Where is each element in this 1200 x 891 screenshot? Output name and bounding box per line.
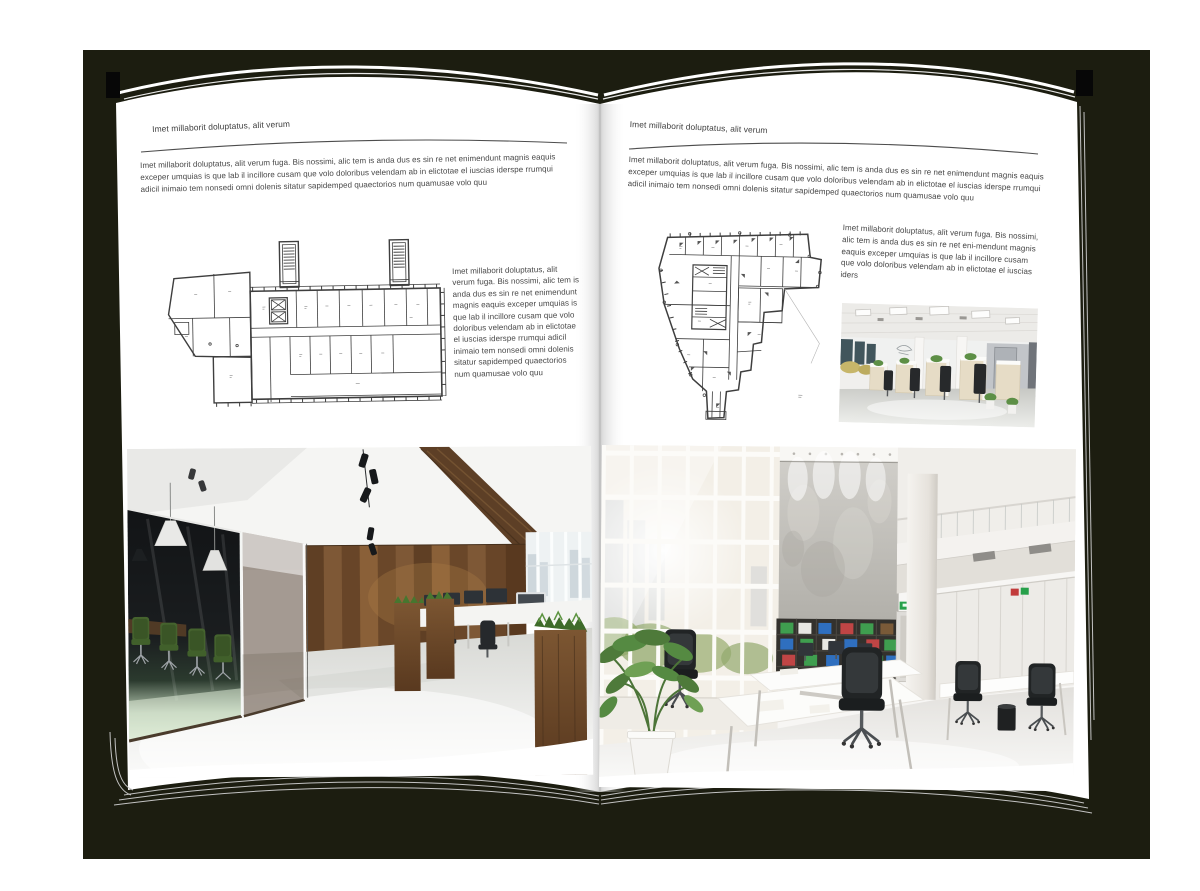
right-page: Imet millaborit doluptatus, alit verum I… (0, 0, 1200, 891)
page-header: Imet millaborit doluptatus, alit verum (630, 119, 930, 143)
floor-plan-2 (646, 220, 836, 426)
waste-bin (998, 706, 1016, 730)
book-mockup-scene: Imet millaborit doluptatus, alit verum I… (0, 0, 1200, 891)
door-marks (672, 235, 800, 410)
concrete-feature-wall (778, 451, 899, 620)
intro-paragraph: Imet millaborit doluptatus, alit verum f… (628, 154, 1049, 207)
text-column: Imet millaborit doluptatus, alit verum f… (840, 222, 1042, 291)
photo-office-small (839, 303, 1038, 427)
floor-plan-drawing (646, 220, 836, 426)
first-aid-sign (1011, 589, 1019, 596)
photo-atrium-office (599, 445, 1076, 791)
assembly-sign (1021, 588, 1029, 595)
